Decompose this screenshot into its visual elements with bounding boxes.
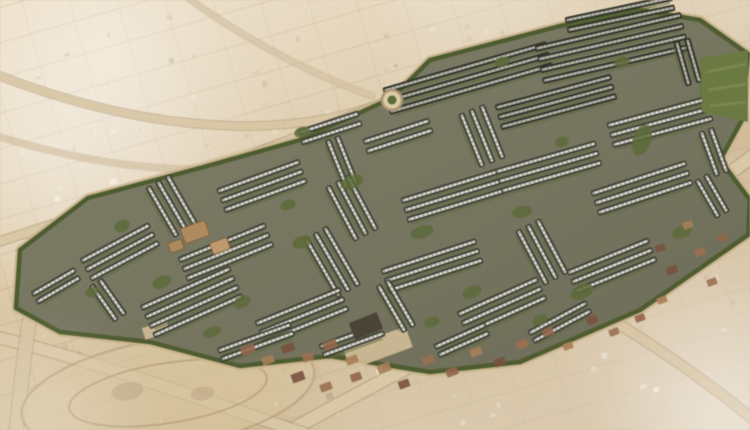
roundabout xyxy=(382,90,402,110)
community-park xyxy=(700,50,748,122)
scene-root xyxy=(0,0,750,430)
aerial-masterplan-render xyxy=(0,0,750,430)
aerial-scene-canvas xyxy=(0,0,750,430)
